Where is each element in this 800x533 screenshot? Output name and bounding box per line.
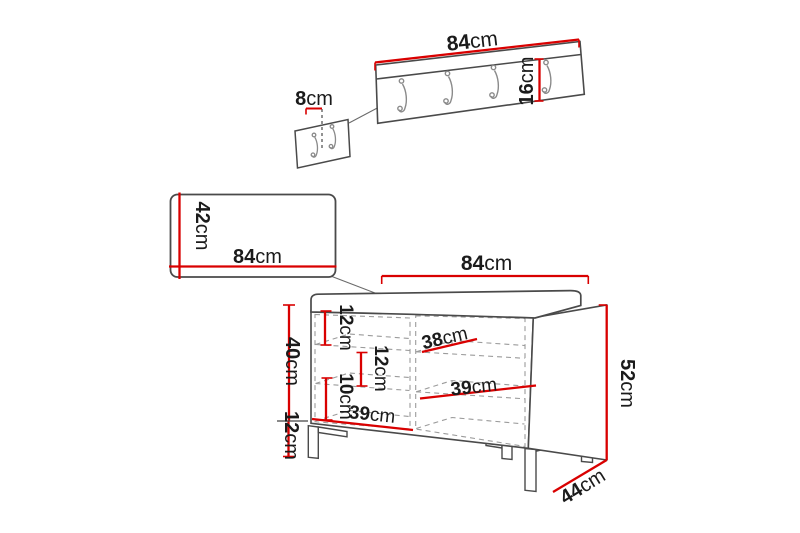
dim-label-mirror-width: 84cm (233, 246, 282, 268)
dim-label-shelf1-height: 12cm (335, 304, 356, 350)
coat-rack (376, 42, 585, 124)
diagram-canvas: 84cm 16cm 8cm 42cm 84cm 84cm 52cm 40cm 1… (0, 0, 800, 533)
bench-right-face (528, 305, 606, 460)
coat-rack-board (376, 42, 585, 124)
dim-label-rack-height: 16cm (516, 57, 538, 106)
dim-label-bench-depth: 44cm (556, 465, 609, 509)
furniture-dimension-diagram: 84cm 16cm 8cm 42cm 84cm 84cm 52cm 40cm 1… (0, 0, 800, 533)
dim-label-bench-body-height: 40cm (281, 337, 303, 386)
bench-leg-front-left-bar (318, 427, 347, 437)
dim-label-shelf2-height: 12cm (370, 345, 391, 391)
bench-leg-front-right (525, 449, 536, 492)
dim-label-hook-spacing: 8cm (295, 88, 333, 110)
dim-label-bench-leg-height: 12cm (280, 411, 302, 460)
dim-label-bench-total-height: 52cm (616, 359, 638, 408)
dim-label-mirror-height: 42cm (191, 202, 213, 251)
detail-panel (295, 120, 350, 169)
hook-spacing-detail (295, 120, 350, 169)
dim-label-bench-width: 84cm (461, 252, 512, 275)
bench-leg-front-left (308, 426, 318, 459)
